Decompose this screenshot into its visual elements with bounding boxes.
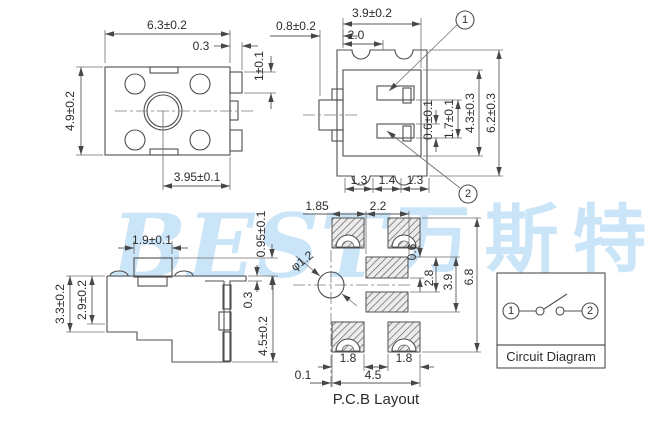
pin1-label: 1 <box>462 14 468 26</box>
dim-side-step: 0.3 <box>241 291 255 308</box>
dim-slot: 0.6±0.1 <box>421 100 435 140</box>
pad-middle-1 <box>366 257 408 278</box>
corner-hole <box>125 74 145 94</box>
drawing-sheet: BEST万斯特 <box>0 0 650 425</box>
dim-gap: 0.8±0.2 <box>276 19 316 33</box>
corner-hole <box>190 130 210 150</box>
dim-pad-w-left: 1.8 <box>340 351 357 365</box>
technical-drawing: 6.3±0.2 0.3 4.9±0.2 3.95±0.1 1±0.1 <box>0 0 650 425</box>
terminal <box>230 72 242 93</box>
pad-middle-2 <box>366 292 408 312</box>
terminal <box>230 130 242 151</box>
dim-side-button-height: 0.95±0.1 <box>254 210 268 257</box>
dim-terminal-height: 1±0.1 <box>252 51 266 81</box>
dim-span-inner: 2.8 <box>422 269 436 286</box>
switch-lever <box>544 294 567 309</box>
front-view: 3.9±0.2 2.0 1 2 0.6±0.1 1.7±0.1 4.3±0. <box>303 6 503 203</box>
top-view: 6.3±0.2 0.3 4.9±0.2 3.95±0.1 1±0.1 <box>63 18 276 190</box>
dim-top-height: 4.9±0.2 <box>63 91 77 131</box>
dim-front-width: 3.9±0.2 <box>352 6 392 20</box>
dim-hole-dia: φ1.2 <box>288 248 316 274</box>
terminal <box>230 101 238 120</box>
dim-pad-w-right: 1.8 <box>396 351 413 365</box>
dim-span-mid: 3.9 <box>441 273 455 290</box>
dim-foot-left: 1.3 <box>351 173 368 187</box>
side-button <box>134 258 172 277</box>
circuit-pin2-label: 2 <box>587 305 593 317</box>
pcb-layout: φ1.2 1.85 2.2 0.6 2.8 3.9 6.8 <box>288 199 481 408</box>
dim-pcb-total-height: 6.8 <box>462 268 476 285</box>
gap-dimension: 0.8±0.2 <box>270 19 358 96</box>
dim-side-button-width: 1.9±0.1 <box>132 233 172 247</box>
switch-contact <box>556 307 564 315</box>
dim-side-total-height: 4.5±0.2 <box>256 316 270 356</box>
dim-total-height: 6.2±0.3 <box>484 93 498 133</box>
dim-foot-right: 1.3 <box>407 173 424 187</box>
dim-pcb-offset: 0.1 <box>295 368 312 382</box>
dim-top-step: 0.3 <box>193 39 210 53</box>
dim-pcb-width: 4.5 <box>365 368 382 382</box>
dim-foot-mid: 1.4 <box>379 173 396 187</box>
dim-top-width: 6.3±0.2 <box>147 18 187 32</box>
dim-front-button: 2.0 <box>348 28 365 42</box>
switch-contact <box>536 307 544 315</box>
circuit-diagram: 1 2 Circuit Diagram <box>497 273 605 368</box>
dim-hole-offset: 3.95±0.1 <box>174 170 221 184</box>
bottom-tab <box>150 149 178 155</box>
circuit-pin1-label: 1 <box>508 305 514 317</box>
pin2-label: 2 <box>465 188 471 200</box>
dim-pcb-right: 2.2 <box>370 199 387 213</box>
dim-pcb-left: 1.85 <box>305 199 329 213</box>
dim-side-inner-height: 2.9±0.2 <box>75 280 89 320</box>
dim-pad-height: 0.6 <box>405 243 419 260</box>
circuit-diagram-label: Circuit Diagram <box>506 349 596 364</box>
dim-body-height: 4.3±0.3 <box>463 93 477 133</box>
dim-side-body-height: 3.3±0.2 <box>53 284 67 324</box>
top-tab <box>150 67 178 73</box>
corner-hole <box>190 74 210 94</box>
side-terminal <box>219 312 231 330</box>
corner-hole <box>125 130 145 150</box>
side-view: 1.9±0.1 0.95±0.1 3.3±0.2 2.9±0.2 0.3 <box>53 210 278 362</box>
pcb-title: P.C.B Layout <box>333 391 420 408</box>
dim-pitch: 1.7±0.1 <box>442 99 456 139</box>
